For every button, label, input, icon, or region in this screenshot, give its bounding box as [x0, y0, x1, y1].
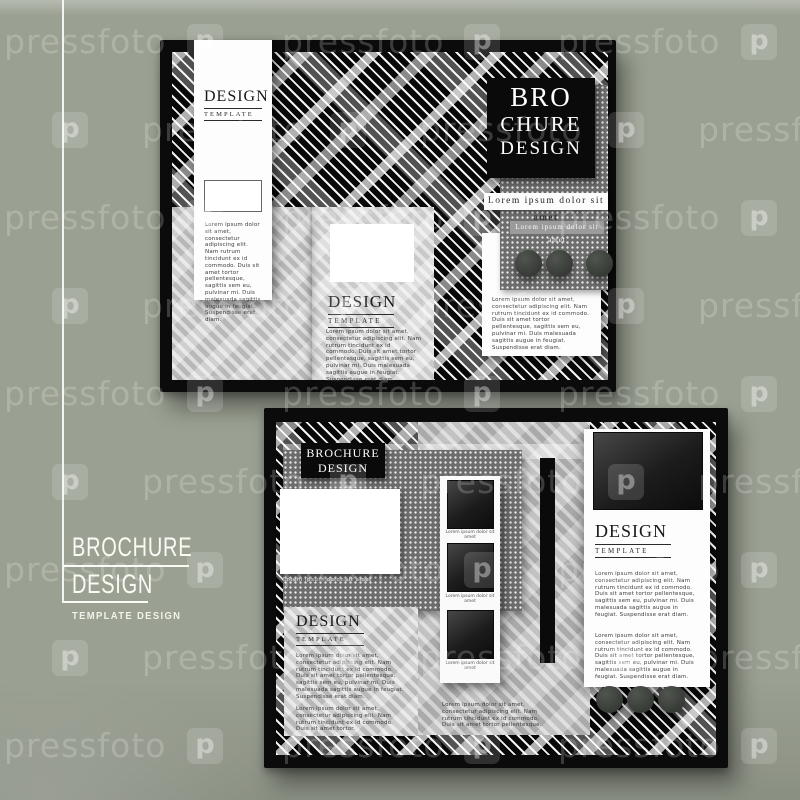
bottom-label-line2: DESIGN: [301, 461, 385, 475]
pressfoto-logo-icon: p: [52, 288, 88, 324]
right-card-body-text: Lorem ipsum dolor sit amet, consectetur …: [492, 297, 590, 351]
pressfoto-logo-icon: p: [741, 376, 777, 412]
bottom-right-card-subtitle: TEMPLATE: [595, 547, 695, 555]
brand-rule-1: [63, 565, 189, 567]
center-panel-subtitle: TEMPLATE: [328, 317, 420, 325]
bottom-label-line1: BROCHURE: [301, 445, 385, 461]
pressfoto-logo-icon: p: [741, 552, 777, 588]
bottom-circle-1: [596, 686, 623, 713]
film-frame-2: [447, 543, 494, 592]
bottom-right-card-title: DESIGN: [595, 521, 695, 542]
bottom-left-panel: DESIGN TEMPLATE Lorem ipsum dolor sit am…: [284, 607, 418, 736]
watermark-text: pressfoto: [698, 286, 800, 325]
brand-rule-2: [63, 601, 148, 603]
banner-title: DESIGN: [204, 88, 262, 106]
bottom-label-box: BROCHURE DESIGN: [301, 443, 385, 478]
pressfoto-logo-icon: p: [741, 200, 777, 236]
bottom-photo-caption: Lorem ipsum dolor sit amet: [283, 577, 413, 583]
cover-circle-3: [586, 250, 613, 277]
bottom-left-panel-paragraph-2: Lorem ipsum dolor sit amet, consectetur …: [296, 706, 406, 733]
film-frame-1: [447, 480, 494, 529]
banner-outline-box: [204, 180, 262, 212]
center-panel-rule-bottom: [328, 327, 394, 328]
bottom-left-panel-subtitle: TEMPLATE: [296, 636, 392, 643]
cover-circle-1: [515, 250, 542, 277]
bottom-right-card-rule-top: [595, 544, 671, 545]
banner-rule-bottom: [204, 120, 262, 121]
watermark-text: pressfoto: [4, 198, 166, 237]
center-panel-title: DESIGN: [328, 292, 420, 312]
film-caption-3: Lorem ipsum dolor sit amet: [440, 661, 500, 671]
pressfoto-logo-icon: p: [52, 112, 88, 148]
watermark-text: pressfoto: [4, 22, 166, 61]
film-caption-2: Lorem ipsum dolor sit amet: [440, 594, 500, 604]
bottom-left-panel-paragraph-1: Lorem ipsum dolor sit amet, consectetur …: [296, 653, 406, 701]
black-accent-bar: [540, 458, 555, 663]
bottom-right-card-paragraph-2: Lorem ipsum dolor sit amet, consectetur …: [595, 633, 697, 681]
brand-title-line2: DESIGN: [72, 571, 153, 598]
pressfoto-logo-icon: p: [52, 640, 88, 676]
top-brochure: DESIGN TEMPLATE Lorem ipsum dolor sit am…: [160, 40, 616, 392]
film-strip: Lorem ipsum dolor sit amet Lorem ipsum d…: [440, 476, 500, 683]
bottom-circle-3: [658, 686, 685, 713]
cover-title-box: BRO CHURE DESIGN: [487, 78, 595, 178]
banner-body-text: Lorem ipsum dolor sit amet, consectetur …: [205, 222, 261, 324]
banner-rule-top: [204, 108, 262, 109]
bottom-center-text: Lorem ipsum dolor sit amet, consectetur …: [442, 702, 552, 729]
cover-strip-gray: Lorem ipsum dolor sit amet: [510, 221, 604, 234]
stock-image-canvas: DESIGN TEMPLATE Lorem ipsum dolor sit am…: [0, 0, 800, 800]
background-top-highlight: [0, 0, 800, 16]
pressfoto-logo-icon: p: [187, 552, 223, 588]
bottom-right-card: DESIGN TEMPLATE Lorem ipsum dolor sit am…: [584, 429, 710, 687]
center-panel-photo-placeholder: [330, 224, 414, 282]
brand-title-line1: BROCHURE: [72, 534, 192, 561]
film-frame-3: [447, 610, 494, 659]
cover-title-line3: DESIGN: [487, 137, 595, 161]
cover-title-line2: CHURE: [487, 112, 595, 137]
center-panel-body-text: Lorem ipsum dolor sit amet, consectetur …: [326, 329, 422, 383]
bottom-photo-placeholder: [280, 489, 400, 574]
pressfoto-logo-icon: p: [52, 464, 88, 500]
watermark-text: pressfoto: [4, 374, 166, 413]
cover-strip-white: Lorem ipsum dolor sit amet: [484, 193, 608, 210]
bottom-right-card-photo: [593, 432, 703, 510]
banner-subtitle: TEMPLATE: [204, 111, 262, 118]
cover-title-line1: BRO: [487, 82, 595, 112]
top-brochure-banner: DESIGN TEMPLATE Lorem ipsum dolor sit am…: [194, 40, 272, 300]
bottom-left-panel-rule-bottom: [296, 645, 364, 646]
background-corner-sheen: [0, 680, 280, 800]
top-brochure-center-panel: DESIGN TEMPLATE Lorem ipsum dolor sit am…: [312, 207, 434, 380]
bottom-left-panel-title: DESIGN: [296, 613, 392, 631]
bottom-left-panel-rule-top: [296, 633, 364, 634]
bottom-right-card-rule-bottom: [595, 557, 671, 558]
bottom-circle-2: [627, 686, 654, 713]
bottom-right-card-paragraph-1: Lorem ipsum dolor sit amet, consectetur …: [595, 571, 697, 619]
pressfoto-logo-icon: p: [741, 24, 777, 60]
divider-line-vertical: [62, 0, 64, 603]
cover-circle-2: [546, 250, 573, 277]
center-panel-rule-top: [328, 314, 394, 315]
brand-tagline: TEMPLATE DESIGN: [72, 610, 181, 622]
bottom-brochure: BROCHURE DESIGN Lorem ipsum dolor sit am…: [264, 408, 728, 768]
watermark-text: pressfoto: [698, 110, 800, 149]
film-caption-1: Lorem ipsum dolor sit amet: [440, 530, 500, 540]
